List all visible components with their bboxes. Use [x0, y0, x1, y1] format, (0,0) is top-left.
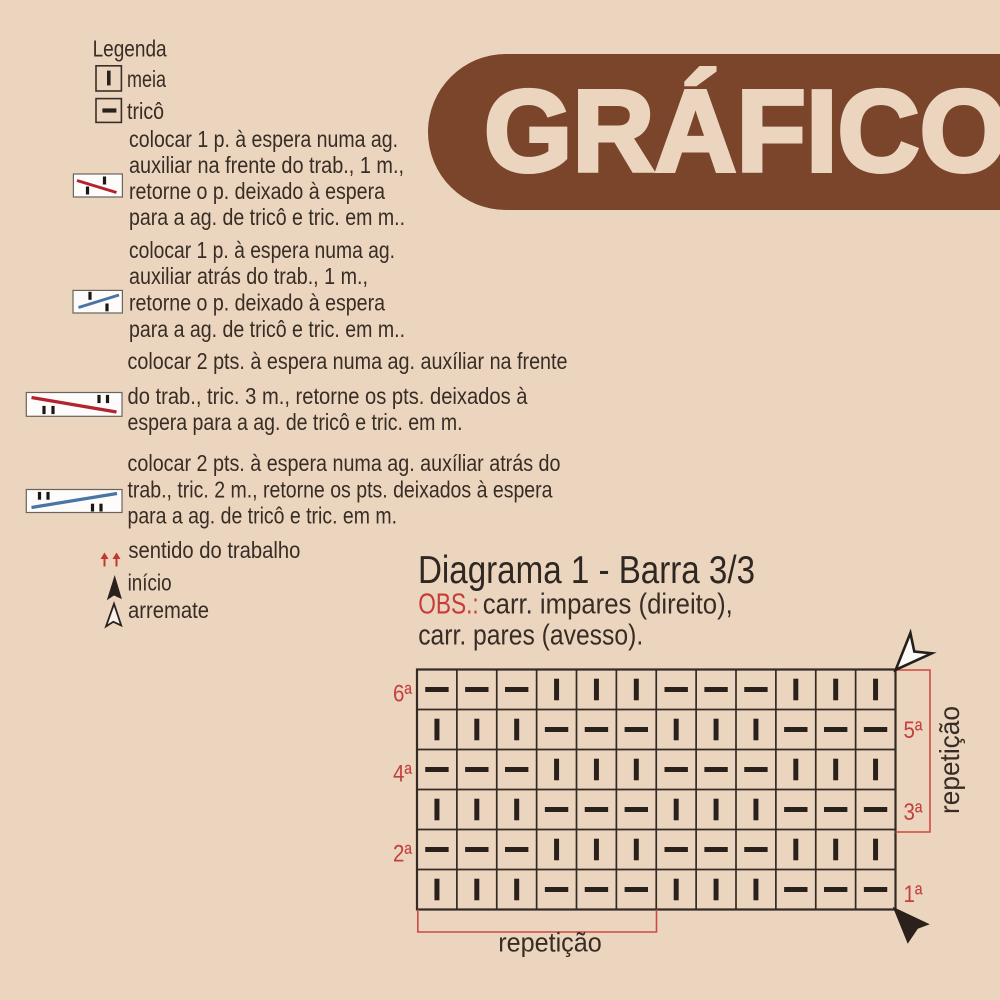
svg-text:auxiliar na frente do trab., 1: auxiliar na frente do trab., 1 m., — [129, 152, 404, 178]
svg-text:1ª: 1ª — [904, 881, 923, 908]
svg-text:colocar 1 p. à espera numa ag.: colocar 1 p. à espera numa ag. — [129, 126, 398, 152]
svg-text:5ª: 5ª — [904, 717, 923, 744]
svg-text:arremate: arremate — [128, 597, 209, 623]
svg-text:do trab., tric. 3 m., retorne: do trab., tric. 3 m., retorne os pts. de… — [128, 383, 528, 409]
svg-text:retorne o p. deixado à espera: retorne o p. deixado à espera — [129, 290, 385, 316]
svg-text:sentido do trabalho: sentido do trabalho — [128, 537, 300, 563]
svg-text:início: início — [128, 569, 172, 595]
svg-text:trab., tric. 2 m., retorne os: trab., tric. 2 m., retorne os pts. deixa… — [128, 477, 553, 503]
svg-text:meia: meia — [127, 66, 166, 92]
svg-text:repetição: repetição — [498, 928, 602, 958]
svg-text:carr. impares (direito),: carr. impares (direito), — [483, 588, 733, 620]
svg-text:auxiliar atrás do trab., 1 m.,: auxiliar atrás do trab., 1 m., — [129, 263, 368, 289]
svg-text:carr. pares (avesso).: carr. pares (avesso). — [418, 620, 643, 652]
svg-text:para a ag. de tricô e tric. em: para a ag. de tricô e tric. em m.. — [129, 316, 405, 342]
svg-text:GRÁFICO: GRÁFICO — [484, 66, 1000, 196]
svg-text:4ª: 4ª — [393, 761, 412, 788]
svg-text:Legenda: Legenda — [93, 36, 167, 62]
svg-text:6ª: 6ª — [393, 681, 412, 708]
svg-text:repetição: repetição — [934, 706, 965, 814]
svg-text:colocar 1 p. à espera numa ag.: colocar 1 p. à espera numa ag. — [129, 237, 395, 263]
svg-text:para a ag. de tricô e tric. em: para a ag. de tricô e tric. em m.. — [129, 204, 405, 230]
svg-text:3ª: 3ª — [904, 799, 923, 826]
svg-text:tricô: tricô — [127, 98, 164, 124]
svg-text:retorne o p. deixado à espera: retorne o p. deixado à espera — [129, 178, 385, 204]
svg-text:espera para a ag. de tricô e t: espera para a ag. de tricô e tric. em m. — [128, 409, 463, 435]
svg-text:para a ag. de tricô e tric. em: para a ag. de tricô e tric. em m. — [128, 503, 398, 529]
svg-text:2ª: 2ª — [393, 841, 412, 868]
svg-text:colocar 2 pts. à espera numa a: colocar 2 pts. à espera numa ag. auxília… — [128, 348, 568, 374]
svg-text:Diagrama 1 - Barra 3/3: Diagrama 1 - Barra 3/3 — [418, 549, 755, 592]
svg-text:colocar 2 pts. à espera numa a: colocar 2 pts. à espera numa ag. auxília… — [128, 450, 561, 476]
svg-text:OBS.:: OBS.: — [418, 588, 479, 620]
